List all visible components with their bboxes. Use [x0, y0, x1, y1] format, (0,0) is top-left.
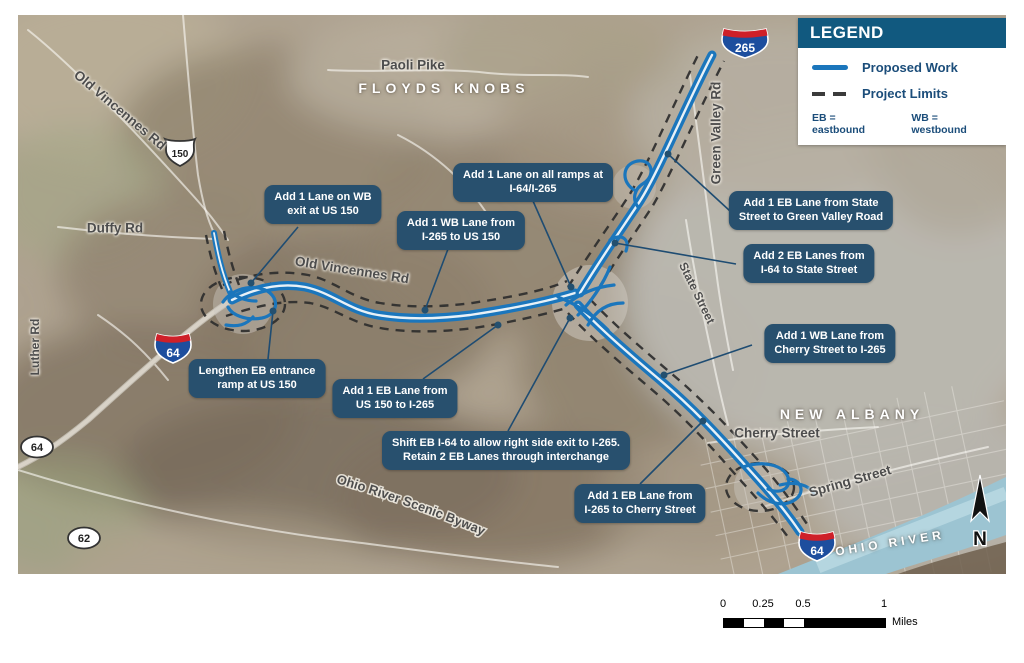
callout-eb-us150-i265: Add 1 EB Lane from US 150 to I-265 — [332, 379, 457, 418]
svg-text:64: 64 — [810, 544, 824, 558]
callout-line: Add 1 EB Lane from — [584, 489, 695, 503]
proposed-work-label: Proposed Work — [862, 60, 958, 75]
callout-line: Street to Green Valley Road — [739, 210, 883, 224]
callout-line: Add 1 Lane on all ramps at — [463, 168, 603, 182]
callout-lengthen-eb-ramp: Lengthen EB entrance ramp at US 150 — [189, 359, 326, 398]
callout-line: Add 1 WB Lane from — [774, 329, 885, 343]
callout-eb-i64-state: Add 2 EB Lanes from I-64 to State Street — [743, 244, 874, 283]
callout-line: Shift EB I-64 to allow right side exit t… — [392, 436, 620, 450]
project-limits-label: Project Limits — [862, 86, 948, 101]
callout-line: Add 1 WB Lane from — [407, 216, 515, 230]
legend-box: LEGEND Proposed Work Project Limits EB =… — [798, 18, 1006, 145]
abbr-westbound: WB = westbound — [911, 112, 996, 136]
road-label-duffy-rd: Duffy Rd — [87, 221, 143, 236]
legend-item-project-limits: Project Limits — [812, 86, 996, 101]
project-limits-swatch — [812, 92, 848, 96]
scale-bar: 0 0.25 0.5 1 Miles — [700, 598, 940, 648]
callout-line: I-64 to State Street — [753, 263, 864, 277]
callout-all-ramps-i64-i265: Add 1 Lane on all ramps at I-64/I-265 — [453, 163, 613, 202]
scale-unit-label: Miles — [892, 616, 918, 628]
callout-line: Add 1 Lane on WB — [274, 190, 371, 204]
state-route-62-shield: 62 — [68, 528, 100, 549]
callout-line: Retain 2 EB Lanes through interchange — [392, 450, 620, 464]
road-label-green-valley-rd: Green Valley Rd — [709, 82, 724, 185]
scale-tick-025: 0.25 — [752, 598, 773, 610]
callout-line: ramp at US 150 — [199, 378, 316, 392]
callout-wb-lane-i265-us150: Add 1 WB Lane from I-265 to US 150 — [397, 211, 525, 250]
road-label-paoli-pike: Paoli Pike — [381, 58, 445, 73]
callout-line: I-265 to Cherry Street — [584, 503, 695, 517]
scale-tick-05: 0.5 — [795, 598, 810, 610]
callout-line: Add 2 EB Lanes from — [753, 249, 864, 263]
legend-title: LEGEND — [798, 18, 1006, 48]
abbr-eastbound: EB = eastbound — [812, 112, 891, 136]
proposed-work-swatch — [812, 65, 848, 70]
callout-line: US 150 to I-265 — [342, 398, 447, 412]
callout-eb-i265-cherry: Add 1 EB Lane from I-265 to Cherry Stree… — [574, 484, 705, 523]
callout-wb-exit-us150: Add 1 Lane on WB exit at US 150 — [264, 185, 381, 224]
callout-line: Lengthen EB entrance — [199, 364, 316, 378]
callout-line: Cherry Street to I-265 — [774, 343, 885, 357]
place-label-new-albany: NEW ALBANY — [780, 406, 924, 422]
callout-wb-cherry-i265: Add 1 WB Lane from Cherry Street to I-26… — [764, 324, 895, 363]
callout-line: Add 1 EB Lane from — [342, 384, 447, 398]
legend-item-proposed-work: Proposed Work — [812, 60, 996, 75]
scale-tick-0: 0 — [720, 598, 726, 610]
road-label-cherry-street: Cherry Street — [734, 426, 820, 441]
callout-line: exit at US 150 — [274, 204, 371, 218]
scale-bar-segments — [723, 618, 886, 628]
scale-tick-1: 1 — [881, 598, 887, 610]
callout-shift-eb-i64: Shift EB I-64 to allow right side exit t… — [382, 431, 630, 470]
svg-text:64: 64 — [31, 442, 44, 454]
project-map: 150 64 64 265 64 — [18, 15, 1006, 574]
svg-text:62: 62 — [78, 533, 90, 545]
place-label-floyds-knobs: FLOYDS KNOBS — [358, 80, 529, 96]
legend-abbreviations: EB = eastbound WB = westbound — [812, 112, 996, 136]
callout-line: I-64/I-265 — [463, 182, 603, 196]
callout-line: I-265 to US 150 — [407, 230, 515, 244]
state-route-64-shield: 64 — [21, 437, 53, 458]
svg-text:N: N — [973, 529, 987, 550]
callout-line: Add 1 EB Lane from State — [739, 196, 883, 210]
svg-text:265: 265 — [735, 41, 755, 55]
callout-eb-state-greenvalley: Add 1 EB Lane from State Street to Green… — [729, 191, 893, 230]
svg-text:64: 64 — [166, 346, 180, 360]
road-label-luther-rd: Luther Rd — [28, 319, 42, 376]
svg-text:150: 150 — [172, 149, 189, 160]
